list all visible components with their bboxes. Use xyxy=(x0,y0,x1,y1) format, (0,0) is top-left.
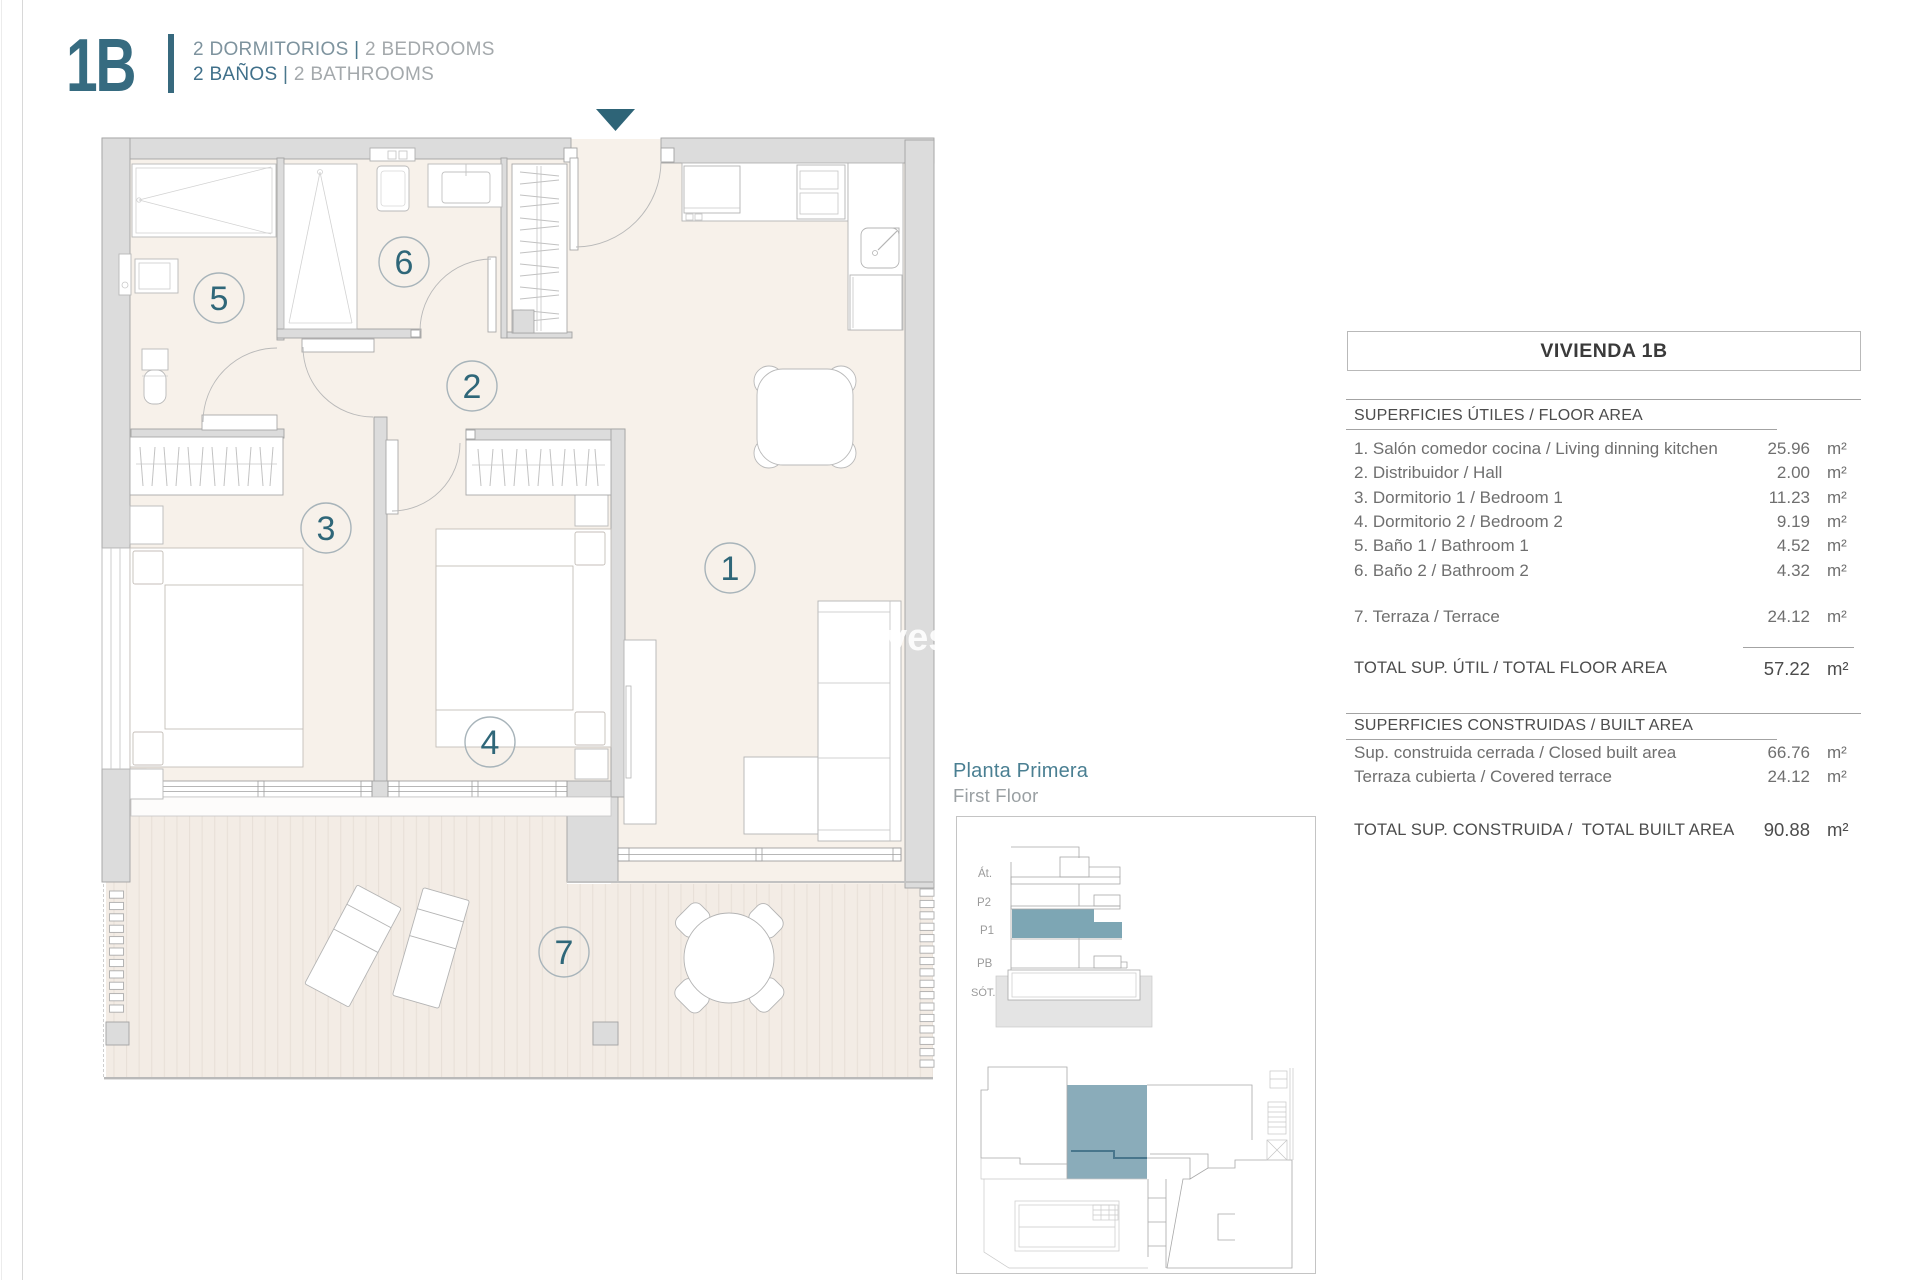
svg-text:3: 3 xyxy=(317,510,336,548)
svg-text:1: 1 xyxy=(721,550,740,588)
svg-text:2: 2 xyxy=(463,368,482,406)
svg-text:P1: P1 xyxy=(980,925,994,937)
svg-text:PB: PB xyxy=(977,958,993,970)
svg-text:5: 5 xyxy=(210,280,229,318)
svg-text:P2: P2 xyxy=(977,897,991,909)
svg-text:ves: ves xyxy=(886,617,949,659)
svg-text:Át.: Át. xyxy=(978,867,992,880)
svg-text:4: 4 xyxy=(481,724,500,762)
svg-text:6: 6 xyxy=(395,244,414,282)
svg-text:7: 7 xyxy=(555,934,574,972)
svg-text:SÓT.: SÓT. xyxy=(971,986,995,999)
